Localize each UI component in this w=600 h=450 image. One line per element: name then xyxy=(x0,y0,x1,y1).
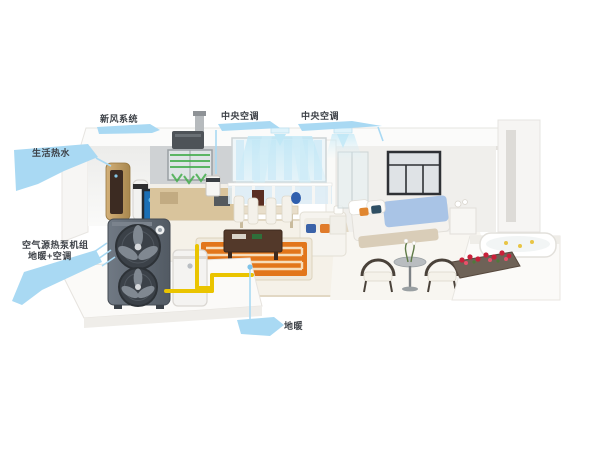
blob-floor-heating xyxy=(237,317,284,336)
fan-icon xyxy=(119,268,157,306)
ribbon-fresh-air xyxy=(97,124,160,134)
bathtub xyxy=(480,233,556,257)
house-cutaway-illustration xyxy=(0,0,600,450)
label-fresh-air: 新风系统 xyxy=(100,114,138,125)
blue-pillow xyxy=(306,224,316,233)
blue-vase xyxy=(291,192,301,204)
label-ac-living: 中央空调 xyxy=(221,111,259,122)
pointer-dot xyxy=(247,264,252,269)
bedroom-window xyxy=(388,152,440,194)
label-hot-water: 生活热水 xyxy=(32,148,70,159)
fan-icon xyxy=(116,225,160,269)
rubber-duck xyxy=(504,241,508,245)
label-ac-bedroom: 中央空调 xyxy=(301,111,339,122)
label-heat-pump-line2: 地暖+空调 xyxy=(22,251,89,262)
rubber-duck xyxy=(530,240,534,244)
rubber-duck xyxy=(518,244,522,248)
hot-water-tank xyxy=(106,163,130,220)
orange-pillow xyxy=(359,207,369,216)
side-table xyxy=(330,216,346,234)
kitchen-cabinets xyxy=(150,184,234,220)
label-floor-heating: 地暖 xyxy=(284,321,303,332)
fresh-air-unit xyxy=(172,131,204,149)
outdoor-heat-pump xyxy=(108,219,170,309)
orange-pillow xyxy=(320,224,330,233)
label-heat-pump: 空气源热泵机组 地暖+空调 xyxy=(22,240,89,262)
page: 新风系统 中央空调 中央空调 生活热水 空气源热泵机组 地暖+空调 地暖 xyxy=(0,0,600,450)
wall-fresh-air-device xyxy=(206,176,220,196)
teal-pillow xyxy=(371,205,382,214)
buffer-tank xyxy=(173,250,207,306)
label-heat-pump-line1: 空气源热泵机组 xyxy=(22,240,89,251)
far-right-wall xyxy=(498,120,540,232)
